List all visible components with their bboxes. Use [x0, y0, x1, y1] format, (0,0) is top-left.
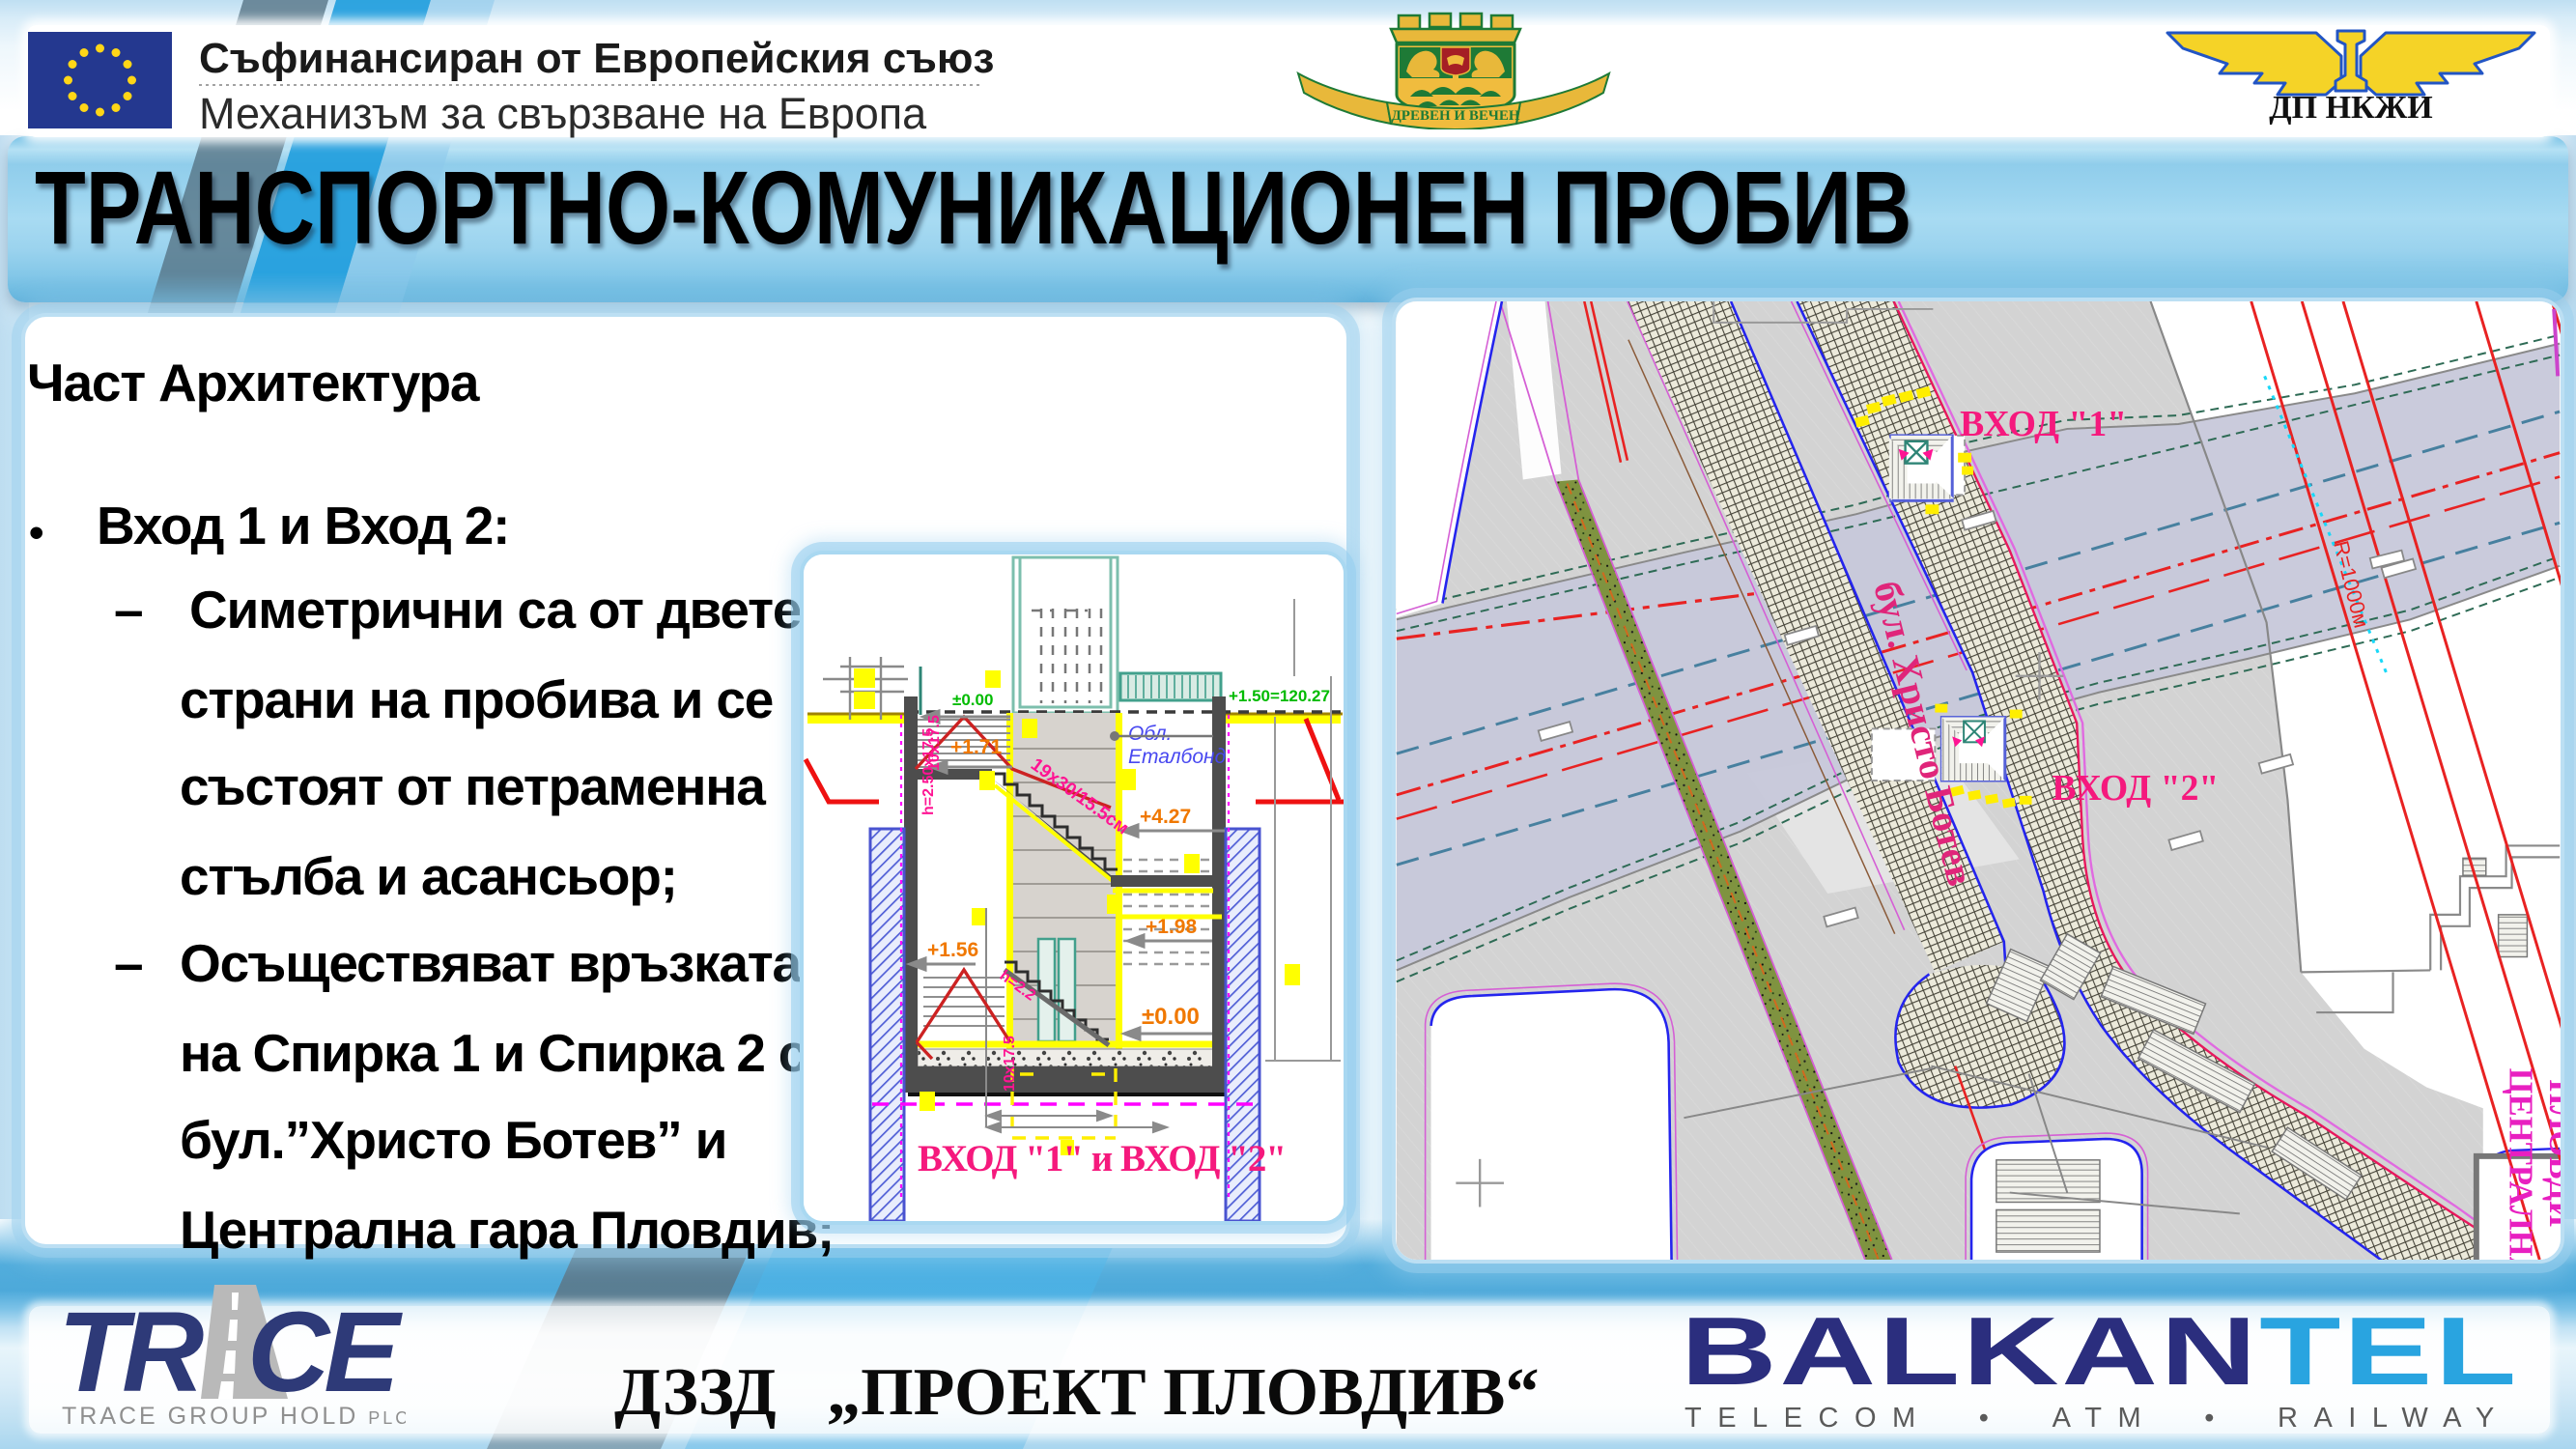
svg-text:TR: TR — [58, 1289, 204, 1416]
svg-text:ЦЕНТРАЛНА Г: ЦЕНТРАЛНА Г — [2503, 1068, 2540, 1260]
svg-text:ДП НКЖИ: ДП НКЖИ — [2269, 90, 2433, 126]
svg-text:±0.00: ±0.00 — [952, 691, 993, 709]
svg-text:TRACE GROUP HOLD PLC: TRACE GROUP HOLD PLC — [62, 1403, 406, 1430]
svg-text:ДРЕВЕН И ВЕЧЕН: ДРЕВЕН И ВЕЧЕН — [1391, 108, 1519, 124]
svg-text:Обл.: Обл. — [1128, 723, 1172, 745]
svg-text:ВХОД "2": ВХОД "2" — [2052, 768, 2219, 809]
svg-text:ВХОД "1" и ВХОД "2": ВХОД "1" и ВХОД "2" — [918, 1138, 1286, 1179]
svg-text:h=2.50x17.5: h=2.50x17.5 — [920, 728, 937, 815]
svg-text:10x17.5: 10x17.5 — [1002, 1036, 1018, 1092]
svg-text:ВХОД "1": ВХОД "1" — [1960, 404, 2127, 444]
svg-text:CE: CE — [247, 1289, 403, 1416]
svg-text:+4.27: +4.27 — [1140, 806, 1191, 828]
svg-text:ПЛОВДИ: ПЛОВДИ — [2542, 1080, 2561, 1228]
svg-text:Еталбонд: Еталбонд — [1128, 746, 1226, 768]
svg-text:+1.50=120.27: +1.50=120.27 — [1229, 687, 1330, 705]
svg-text:±0.00: ±0.00 — [1142, 1004, 1200, 1030]
svg-text:+1.71: +1.71 — [950, 736, 1002, 758]
svg-text:+1.98: +1.98 — [1146, 916, 1197, 938]
svg-text:+1.56: +1.56 — [927, 939, 978, 961]
